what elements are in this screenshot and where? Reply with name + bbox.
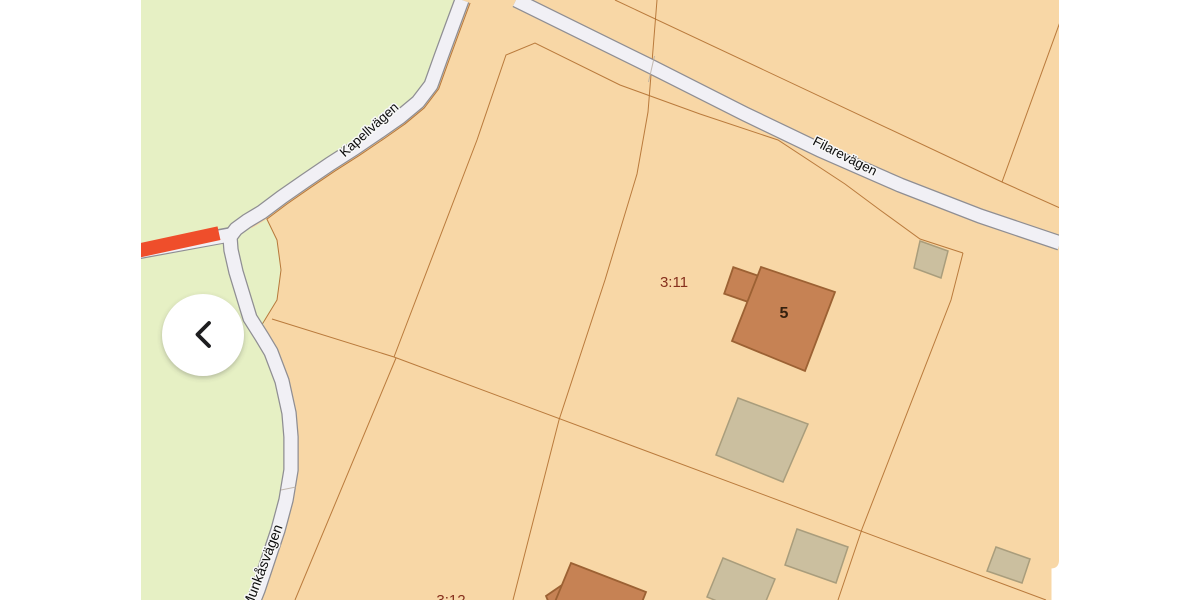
svg-text:5: 5: [780, 305, 789, 322]
svg-text:3:12: 3:12: [436, 592, 465, 600]
svg-text:3:11: 3:11: [660, 274, 688, 291]
